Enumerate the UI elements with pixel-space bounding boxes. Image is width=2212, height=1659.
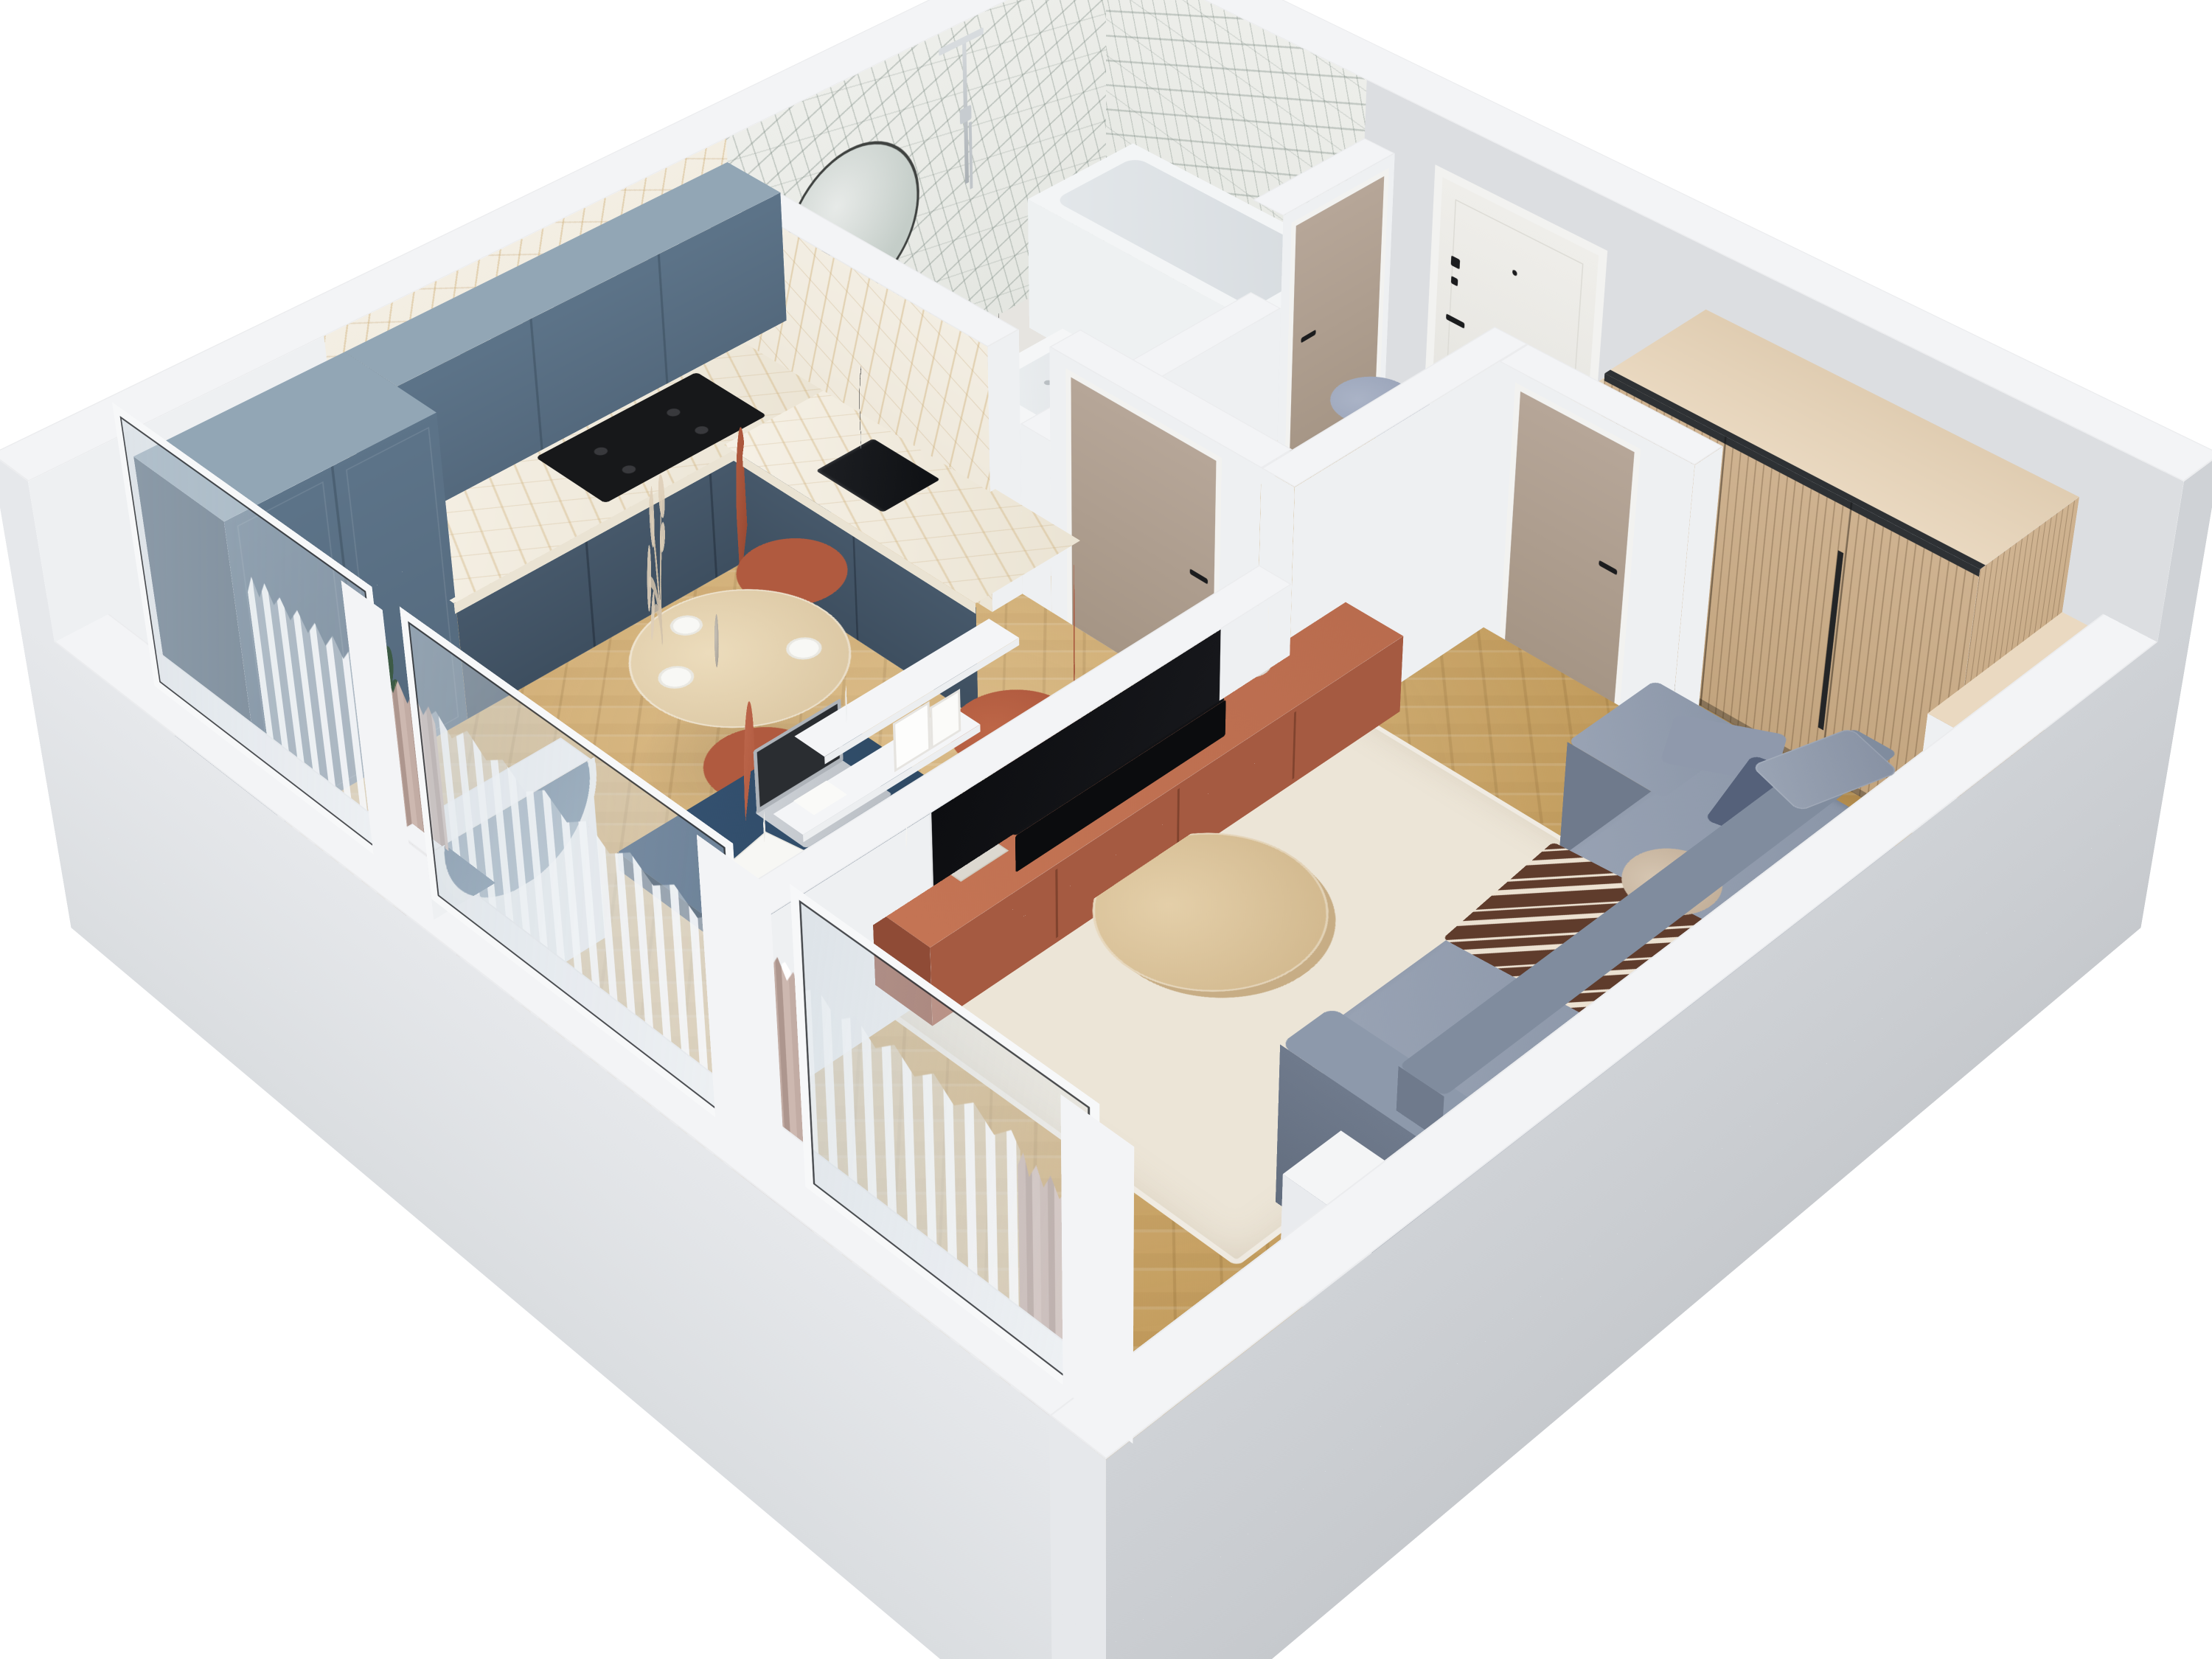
hall-door-c-handle bbox=[1599, 560, 1617, 576]
upper-cabinet-seam-2 bbox=[658, 254, 669, 384]
floorplan-scene bbox=[0, 0, 2212, 1659]
base-cabinet-side-seam bbox=[852, 529, 858, 641]
apartment-plane bbox=[136, 257, 2076, 1562]
soundbar-knob bbox=[1089, 745, 1122, 766]
base-cabinet-seam-1 bbox=[585, 536, 596, 647]
bathroom-door-handle bbox=[1301, 330, 1315, 344]
kitchen-faucet-base bbox=[860, 428, 861, 452]
console-seam-3 bbox=[1292, 712, 1296, 780]
console-seam-1 bbox=[1055, 869, 1058, 939]
base-cabinet-seam-2 bbox=[709, 468, 717, 579]
upper-cabinet-seam-1 bbox=[529, 319, 543, 451]
perspective-camera bbox=[0, 0, 2212, 1659]
window-end-stub bbox=[1060, 1094, 1134, 1444]
wardrobe-handle-2 bbox=[1818, 550, 1844, 730]
